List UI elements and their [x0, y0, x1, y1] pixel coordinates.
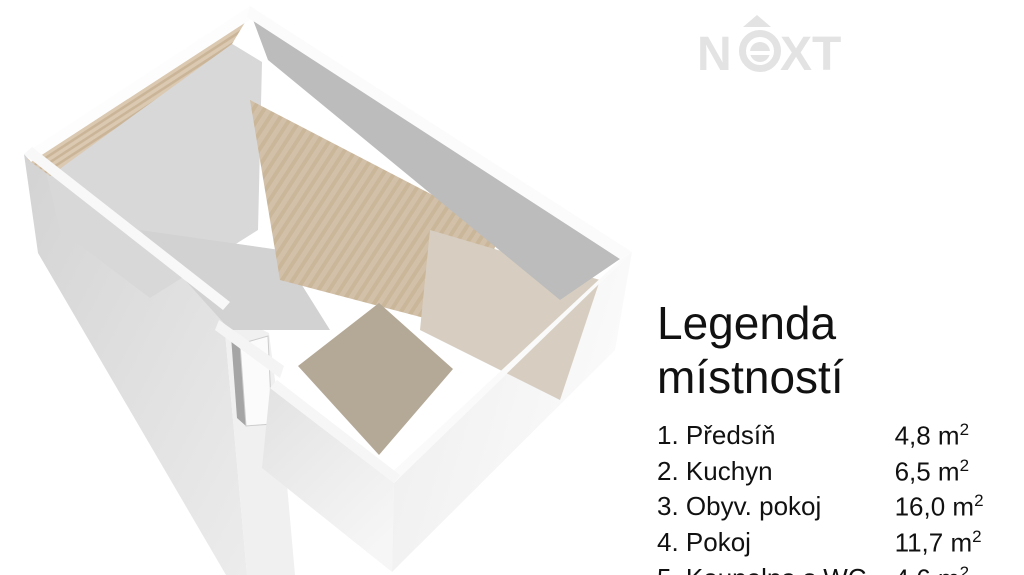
svg-text:N: N: [697, 28, 732, 81]
svg-text:XT: XT: [780, 28, 841, 81]
